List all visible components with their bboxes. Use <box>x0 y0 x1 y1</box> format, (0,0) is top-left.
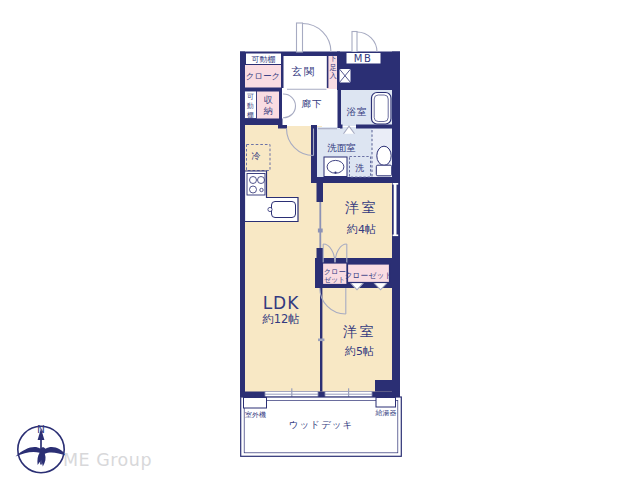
bedroom5-floor <box>320 284 394 394</box>
washer-label: 洗 <box>355 163 364 173</box>
toilet-icon <box>376 146 391 176</box>
bedroom4-label: 洋室 <box>345 199 378 215</box>
bedroom5-label: 洋室 <box>343 323 376 339</box>
meter-box-door <box>352 32 377 53</box>
corner-pillar <box>375 380 392 392</box>
sink-icon <box>272 202 296 218</box>
water-heater-label: 給湯器 <box>375 409 397 417</box>
floor-plan-page: 可動棚 クローク 玄関 下足入 MB 可動棚 収納 廊下 浴室 洗面室 洗 冷 … <box>0 0 640 480</box>
bedroom5-size: 約5帖 <box>344 345 374 358</box>
hallway-label: 廊下 <box>302 98 323 109</box>
sliding-door-ldk-bedroom4 <box>319 202 321 248</box>
brand-logo-text: ME Group <box>63 450 152 470</box>
entrance-door <box>297 23 332 52</box>
vanity-sink-icon <box>324 157 347 177</box>
wood-deck-label: ウッドデッキ <box>289 419 353 430</box>
bedroom4-side-window <box>394 184 397 235</box>
water-heater-box <box>376 398 396 408</box>
bathroom-label: 浴室 <box>347 106 368 117</box>
shaft-box <box>339 69 351 84</box>
ldk-size: 約12帖 <box>262 312 300 326</box>
compass-logo: N <box>16 423 67 473</box>
closet-large-label: クローゼット <box>345 271 393 280</box>
storage-label: 収納 <box>264 95 274 116</box>
closet-small-label-2: ゼット <box>324 275 346 284</box>
cloak-label: クローク <box>246 71 281 81</box>
bedroom4-size: 約4帖 <box>346 223 376 236</box>
floor-plan-canvas: 可動棚 クローク 玄関 下足入 MB 可動棚 収納 廊下 浴室 洗面室 洗 冷 … <box>0 0 640 480</box>
outdoor-unit-box <box>244 398 267 409</box>
movable-shelf-top-label: 可動棚 <box>252 55 276 64</box>
entrance-label: 玄関 <box>292 65 317 77</box>
meter-box-label: MB <box>354 53 373 64</box>
movable-shelf-side-label: 可動棚 <box>247 93 254 119</box>
fridge-label: 冷 <box>252 151 261 161</box>
bathtub-icon <box>372 93 392 125</box>
ldk-label: LDK <box>263 293 300 313</box>
compass-north-label: N <box>37 423 45 435</box>
outdoor-unit-label: 室外機 <box>245 411 266 419</box>
shoe-cabinet-label: 下足入 <box>329 54 336 80</box>
washroom-label: 洗面室 <box>327 142 356 153</box>
